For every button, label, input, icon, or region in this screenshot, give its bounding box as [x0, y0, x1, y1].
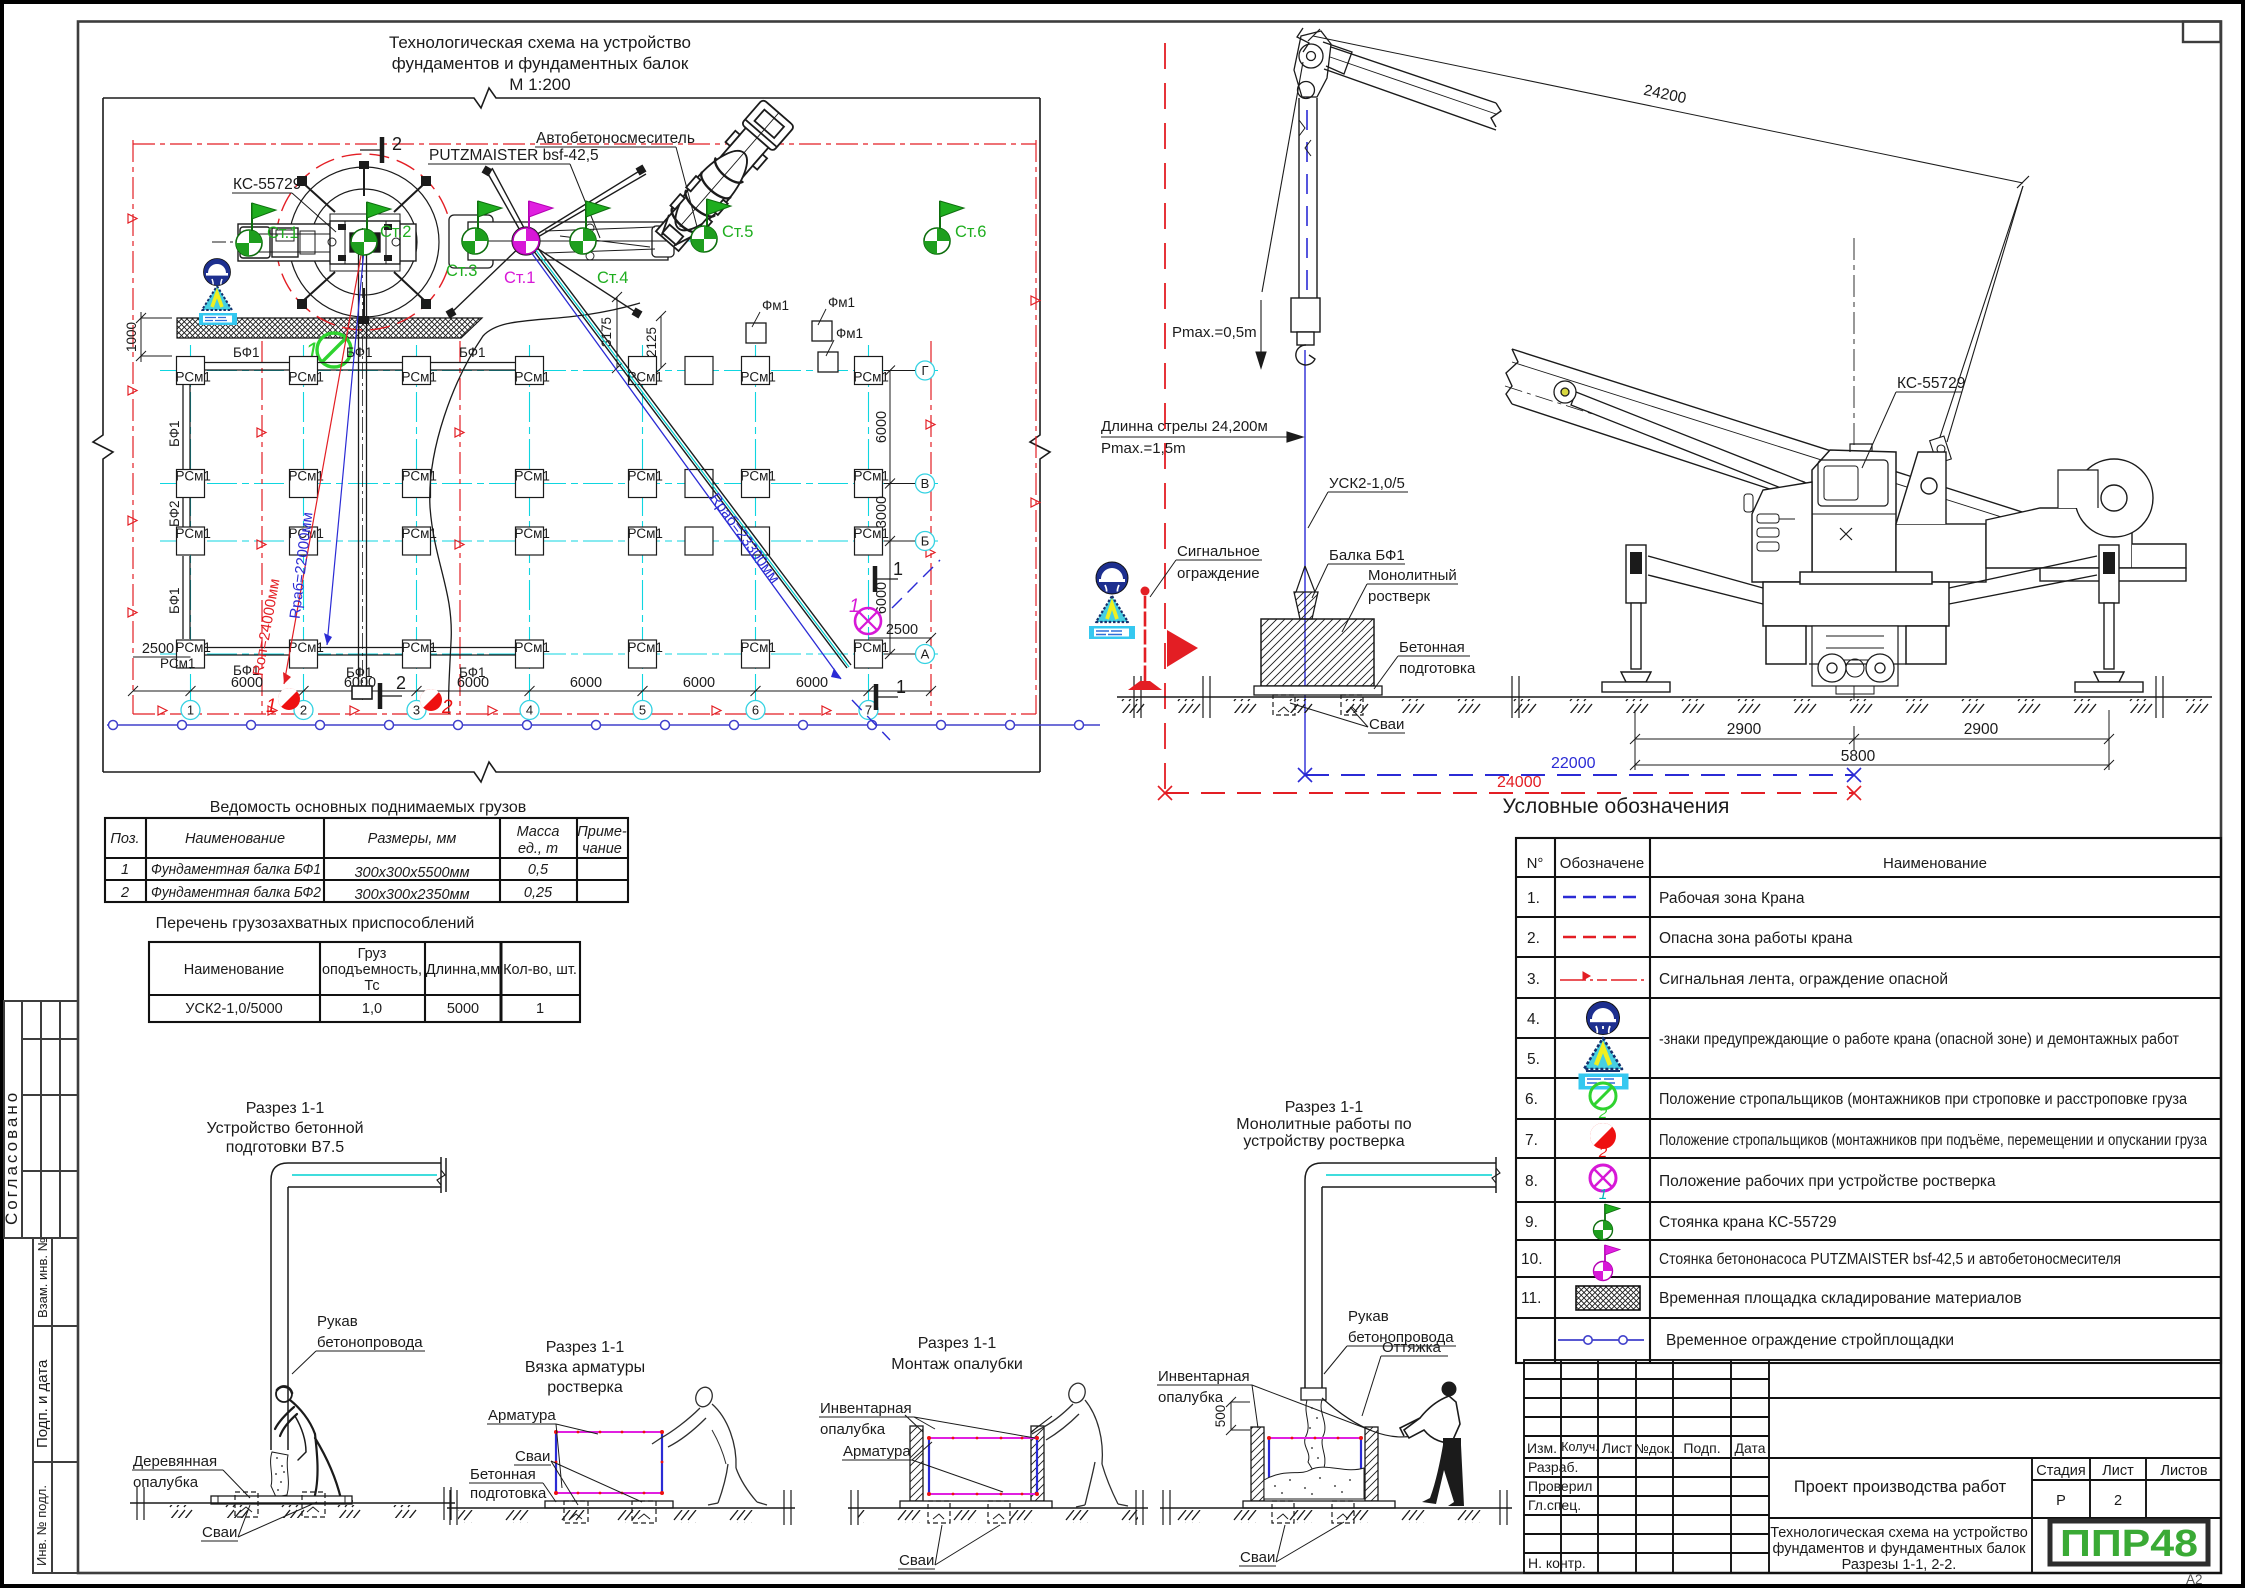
- svg-text:Оттяжка: Оттяжка: [1382, 1339, 1441, 1356]
- svg-text:ограждение: ограждение: [1177, 565, 1260, 582]
- svg-text:КС-55729: КС-55729: [1897, 375, 1965, 392]
- svg-text:Взам. инв. №: Взам. инв. №: [35, 1237, 50, 1318]
- svg-text:БФ1: БФ1: [167, 421, 182, 447]
- svg-text:опалубка: опалубка: [820, 1421, 886, 1438]
- svg-text:1: 1: [896, 677, 906, 697]
- svg-text:6000: 6000: [231, 675, 263, 691]
- svg-text:2: 2: [441, 697, 453, 718]
- svg-text:Сваи: Сваи: [1240, 1549, 1275, 1566]
- svg-text:1: 1: [536, 1001, 544, 1017]
- svg-text:Стадия: Стадия: [2036, 1463, 2085, 1479]
- svg-text:Разрез 1-1: Разрез 1-1: [1285, 1099, 1364, 1116]
- svg-text:2: 2: [1598, 1144, 1608, 1161]
- svg-text:6000: 6000: [683, 675, 715, 691]
- svg-text:1: 1: [849, 596, 860, 617]
- svg-text:УСК2-1,0/5000: УСК2-1,0/5000: [185, 1001, 282, 1017]
- svg-text:Ст.1: Ст.1: [267, 224, 298, 242]
- svg-text:300х300х2350мм: 300х300х2350мм: [354, 887, 469, 903]
- svg-text:Арматура: Арматура: [488, 1407, 556, 1424]
- svg-text:Временная площадка складирован: Временная площадка складирование материа…: [1659, 1290, 2022, 1307]
- svg-text:БФ1: БФ1: [167, 588, 182, 614]
- svg-text:Сваи: Сваи: [899, 1552, 934, 1569]
- svg-text:подготовка: подготовка: [1399, 660, 1476, 677]
- svg-text:3: 3: [413, 703, 420, 718]
- svg-text:бетонопровода: бетонопровода: [317, 1334, 423, 1351]
- svg-text:6000: 6000: [796, 675, 828, 691]
- svg-text:Устройство бетонной: Устройство бетонной: [206, 1120, 363, 1137]
- svg-text:опалубка: опалубка: [1158, 1389, 1224, 1406]
- svg-text:Условные обозначения: Условные обозначения: [1503, 795, 1730, 818]
- svg-text:6: 6: [752, 703, 759, 718]
- svg-text:Наименование: Наименование: [185, 831, 285, 847]
- svg-text:Инвентарная: Инвентарная: [820, 1400, 912, 1417]
- svg-text:Разрез 1-1: Разрез 1-1: [918, 1335, 997, 1352]
- svg-text:3000: 3000: [874, 496, 890, 528]
- svg-text:1: 1: [187, 703, 194, 718]
- svg-text:3.: 3.: [1527, 971, 1540, 988]
- svg-text:Дата: Дата: [1734, 1440, 1765, 1456]
- svg-text:2: 2: [300, 703, 307, 718]
- svg-text:Арматура: Арматура: [843, 1443, 911, 1460]
- svg-text:Согласовано: Согласовано: [2, 1090, 21, 1225]
- svg-text:Стоянка бетононасоса PUTZMAIST: Стоянка бетононасоса PUTZMAISTER bsf-42,…: [1659, 1251, 2121, 1268]
- svg-text:Фм1: Фм1: [836, 326, 863, 341]
- svg-text:фундаментов и фундаментных бал: фундаментов и фундаментных балок: [392, 54, 689, 73]
- svg-text:Вязка арматуры: Вязка арматуры: [525, 1359, 645, 1376]
- svg-text:Разрезы 1-1, 2-2.: Разрезы 1-1, 2-2.: [1842, 1557, 1957, 1573]
- svg-text:Ст.1: Ст.1: [504, 269, 535, 287]
- svg-text:11.: 11.: [1521, 1290, 1541, 1307]
- svg-text:2.: 2.: [1527, 930, 1540, 947]
- svg-text:1: 1: [121, 862, 129, 878]
- svg-text:Ст.3: Ст.3: [446, 262, 477, 280]
- svg-text:Рабочая зона Крана: Рабочая зона Крана: [1659, 890, 1805, 907]
- svg-text:БФ1: БФ1: [346, 345, 372, 360]
- svg-text:Масса: Масса: [517, 824, 560, 840]
- svg-text:В: В: [921, 476, 930, 491]
- svg-text:РСм1: РСм1: [628, 640, 663, 655]
- svg-text:6000: 6000: [457, 675, 489, 691]
- svg-text:Ведомость основных поднимаемых: Ведомость основных поднимаемых грузов: [210, 799, 527, 816]
- svg-text:РСм1: РСм1: [289, 469, 324, 484]
- svg-text:Монтаж опалубки: Монтаж опалубки: [891, 1356, 1023, 1373]
- svg-text:Длинна стрелы 24,200м: Длинна стрелы 24,200м: [1101, 418, 1268, 435]
- svg-text:Автобетоносмеситель: Автобетоносмеситель: [536, 130, 695, 147]
- svg-text:опалубка: опалубка: [133, 1474, 199, 1491]
- svg-text:1.: 1.: [1527, 890, 1540, 907]
- svg-text:РСм1: РСм1: [176, 469, 211, 484]
- svg-text:фундаментов и фундаментных бал: фундаментов и фундаментных балок: [1773, 1541, 2027, 1557]
- svg-text:Рукав: Рукав: [1348, 1308, 1389, 1325]
- svg-text:Р: Р: [2056, 1493, 2066, 1509]
- svg-text:ед., т: ед., т: [518, 841, 558, 857]
- svg-text:Подп. и дата: Подп. и дата: [34, 1359, 51, 1448]
- svg-text:Колуч.: Колуч.: [1561, 1440, 1599, 1454]
- svg-text:Фм1: Фм1: [828, 295, 855, 310]
- svg-text:Инвентарная: Инвентарная: [1158, 1368, 1250, 1385]
- svg-text:PUTZMAISTER bsf-42,5: PUTZMAISTER bsf-42,5: [429, 147, 599, 164]
- svg-text:2: 2: [120, 885, 129, 901]
- svg-text:Разрез 1-1: Разрез 1-1: [246, 1100, 325, 1117]
- svg-text:N°: N°: [1527, 855, 1544, 872]
- svg-text:БФ1: БФ1: [233, 345, 259, 360]
- svg-text:РСм1: РСм1: [628, 469, 663, 484]
- svg-text:РСм1: РСм1: [741, 469, 776, 484]
- svg-text:М 1:200: М 1:200: [509, 75, 570, 94]
- svg-text:УСК2-1,0/5: УСК2-1,0/5: [1329, 475, 1405, 492]
- svg-text:Проект производства работ: Проект производства работ: [1794, 1478, 2007, 1496]
- svg-text:Рукав: Рукав: [317, 1313, 358, 1330]
- svg-text:Временное ограждение стройплощ: Временное ограждение стройплощадки: [1666, 1332, 1954, 1349]
- svg-text:4.: 4.: [1527, 1011, 1540, 1028]
- svg-text:Стоянка крана КС-55729: Стоянка крана КС-55729: [1659, 1214, 1837, 1231]
- svg-text:КС-55729: КС-55729: [233, 176, 301, 193]
- svg-text:РСм1: РСм1: [628, 526, 663, 541]
- svg-text:5800: 5800: [1841, 748, 1876, 765]
- svg-text:Размеры, мм: Размеры, мм: [368, 831, 457, 847]
- svg-text:24000: 24000: [1497, 774, 1542, 791]
- svg-text:-знаки предупреждающие о работ: -знаки предупреждающие о работе крана (о…: [1659, 1031, 2179, 1048]
- svg-text:Подп.: Подп.: [1683, 1440, 1720, 1456]
- svg-text:Разрез 1-1: Разрез 1-1: [546, 1339, 625, 1356]
- svg-text:Технологическая схема на устро: Технологическая схема на устройство: [1770, 1525, 2028, 1541]
- svg-text:Наименование: Наименование: [1883, 855, 1987, 872]
- svg-text:1000: 1000: [124, 322, 139, 352]
- svg-text:5.: 5.: [1527, 1051, 1540, 1068]
- svg-text:Перечень грузозахватных приспо: Перечень грузозахватных приспособлений: [156, 915, 475, 932]
- svg-text:Проверил: Проверил: [1528, 1478, 1592, 1494]
- svg-text:Монолитный: Монолитный: [1368, 567, 1457, 584]
- svg-text:оподъемность,: оподъемность,: [322, 962, 422, 978]
- svg-text:Сваи: Сваи: [1369, 716, 1404, 733]
- svg-text:РСм1: РСм1: [515, 469, 550, 484]
- svg-text:1: 1: [893, 559, 903, 579]
- svg-text:2125: 2125: [644, 327, 659, 357]
- svg-text:6.: 6.: [1525, 1091, 1538, 1108]
- svg-text:Технологическая схема на устро: Технологическая схема на устройство: [389, 33, 691, 52]
- svg-text:ростверк: ростверк: [1368, 588, 1431, 605]
- svg-text:Фм1: Фм1: [762, 298, 789, 313]
- svg-text:Сигнальное: Сигнальное: [1177, 543, 1260, 560]
- svg-text:Pmax.=1,5m: Pmax.=1,5m: [1101, 440, 1186, 457]
- svg-text:РСм1: РСм1: [289, 370, 324, 385]
- svg-text:4: 4: [526, 703, 533, 718]
- svg-text:Наименование: Наименование: [184, 962, 285, 978]
- svg-text:РСм1: РСм1: [854, 469, 889, 484]
- svg-text:чание: чание: [582, 841, 622, 857]
- svg-text:РСм1: РСм1: [176, 370, 211, 385]
- svg-text:ростверка: ростверка: [547, 1379, 623, 1396]
- svg-text:Листов: Листов: [2160, 1463, 2207, 1479]
- svg-text:Разраб.: Разраб.: [1528, 1459, 1578, 1475]
- svg-text:Обозначене: Обозначене: [1560, 855, 1644, 872]
- svg-text:РСм1: РСм1: [402, 370, 437, 385]
- svg-text:5000: 5000: [447, 1001, 479, 1017]
- svg-text:Деревянная: Деревянная: [133, 1453, 217, 1470]
- svg-text:№док.: №док.: [1635, 1441, 1673, 1456]
- svg-text:22000: 22000: [1551, 755, 1596, 772]
- svg-text:300х300х5500мм: 300х300х5500мм: [354, 865, 469, 881]
- svg-text:РСм1: РСм1: [515, 370, 550, 385]
- svg-text:Лист: Лист: [1602, 1440, 1633, 1456]
- svg-text:РСм1: РСм1: [854, 370, 889, 385]
- svg-text:Pmax.=0,5m: Pmax.=0,5m: [1172, 324, 1257, 341]
- svg-text:Положение рабочих при устройст: Положение рабочих при устройстве роствер…: [1659, 1173, 1996, 1190]
- svg-text:Изм.: Изм.: [1527, 1440, 1557, 1456]
- svg-text:Бетонная: Бетонная: [1399, 639, 1465, 656]
- svg-text:А: А: [921, 647, 930, 662]
- svg-text:Сваи: Сваи: [202, 1524, 237, 1541]
- svg-text:Длинна,мм: Длинна,мм: [426, 962, 500, 978]
- svg-text:500: 500: [1213, 1405, 1228, 1428]
- svg-text:2: 2: [392, 134, 402, 154]
- svg-text:0,25: 0,25: [524, 885, 553, 901]
- svg-text:РСм1: РСм1: [741, 640, 776, 655]
- svg-text:РСм1: РСм1: [160, 656, 195, 671]
- svg-text:Опасна зона работы крана: Опасна зона работы крана: [1659, 930, 1853, 947]
- svg-text:Лист: Лист: [2102, 1463, 2134, 1479]
- svg-text:Бетонная: Бетонная: [470, 1466, 536, 1483]
- svg-text:10.: 10.: [1521, 1251, 1543, 1268]
- svg-text:2500: 2500: [142, 641, 174, 657]
- svg-text:устройству ростверка: устройству ростверка: [1243, 1133, 1404, 1150]
- svg-text:Поз.: Поз.: [110, 831, 139, 847]
- svg-text:Приме-: Приме-: [577, 824, 627, 840]
- svg-text:1: 1: [1599, 1186, 1607, 1203]
- svg-text:8.: 8.: [1525, 1173, 1538, 1190]
- svg-text:А2: А2: [2186, 1572, 2203, 1587]
- svg-text:2: 2: [1598, 1105, 1608, 1122]
- svg-text:Сваи: Сваи: [515, 1448, 550, 1465]
- svg-text:5: 5: [639, 703, 646, 718]
- svg-text:Монолитные работы по: Монолитные работы по: [1236, 1116, 1412, 1133]
- svg-text:Г: Г: [921, 363, 928, 378]
- svg-text:РСм1: РСм1: [402, 526, 437, 541]
- svg-text:Ст.2: Ст.2: [380, 223, 411, 241]
- svg-text:6000: 6000: [874, 411, 890, 443]
- svg-text:ППР48: ППР48: [2060, 1523, 2198, 1565]
- svg-text:Положение стропальщиков (монта: Положение стропальщиков (монтажников при…: [1659, 1091, 2187, 1108]
- svg-text:РСм1: РСм1: [515, 640, 550, 655]
- svg-text:2: 2: [396, 673, 406, 693]
- svg-text:0,5: 0,5: [528, 862, 549, 878]
- svg-text:Положение стропальщиков (монта: Положение стропальщиков (монтажников при…: [1659, 1132, 2207, 1149]
- svg-text:Сигнальная лента, ограждение о: Сигнальная лента, ограждение опасной: [1659, 971, 1948, 988]
- svg-text:6000: 6000: [570, 675, 602, 691]
- svg-text:Балка БФ1: Балка БФ1: [1329, 547, 1405, 564]
- svg-text:Гл.спец.: Гл.спец.: [1528, 1497, 1581, 1513]
- svg-text:Н. контр.: Н. контр.: [1528, 1555, 1586, 1571]
- svg-text:РСм1: РСм1: [515, 526, 550, 541]
- svg-text:РСм1: РСм1: [176, 526, 211, 541]
- svg-text:Ст.5: Ст.5: [722, 223, 753, 241]
- svg-text:Груз: Груз: [358, 946, 387, 962]
- svg-text:2900: 2900: [1727, 721, 1762, 738]
- svg-text:2500: 2500: [886, 622, 918, 638]
- svg-text:9.: 9.: [1525, 1214, 1538, 1231]
- svg-text:Инв. № подл.: Инв. № подл.: [34, 1485, 49, 1566]
- svg-text:7.: 7.: [1525, 1132, 1538, 1149]
- svg-text:Фундаментная балка БФ2: Фундаментная балка БФ2: [151, 885, 321, 901]
- svg-text:Ст.4: Ст.4: [597, 269, 628, 287]
- svg-text:РСм1: РСм1: [854, 640, 889, 655]
- svg-text:1: 1: [266, 696, 277, 717]
- svg-text:БФ2: БФ2: [167, 501, 182, 527]
- svg-text:Фундаментная балка БФ1: Фундаментная балка БФ1: [151, 862, 321, 878]
- svg-text:2900: 2900: [1964, 721, 1999, 738]
- svg-text:Кол-во, шт.: Кол-во, шт.: [503, 962, 577, 978]
- svg-text:Ст.6: Ст.6: [955, 223, 986, 241]
- svg-text:7: 7: [865, 703, 872, 718]
- svg-text:Б: Б: [921, 534, 930, 549]
- svg-text:подготовка: подготовка: [470, 1485, 547, 1502]
- svg-text:2: 2: [2114, 1493, 2122, 1509]
- svg-text:РСм1: РСм1: [741, 370, 776, 385]
- svg-text:1,0: 1,0: [362, 1001, 382, 1017]
- svg-text:подготовки В7.5: подготовки В7.5: [226, 1139, 345, 1156]
- svg-text:Тс: Тс: [364, 978, 379, 994]
